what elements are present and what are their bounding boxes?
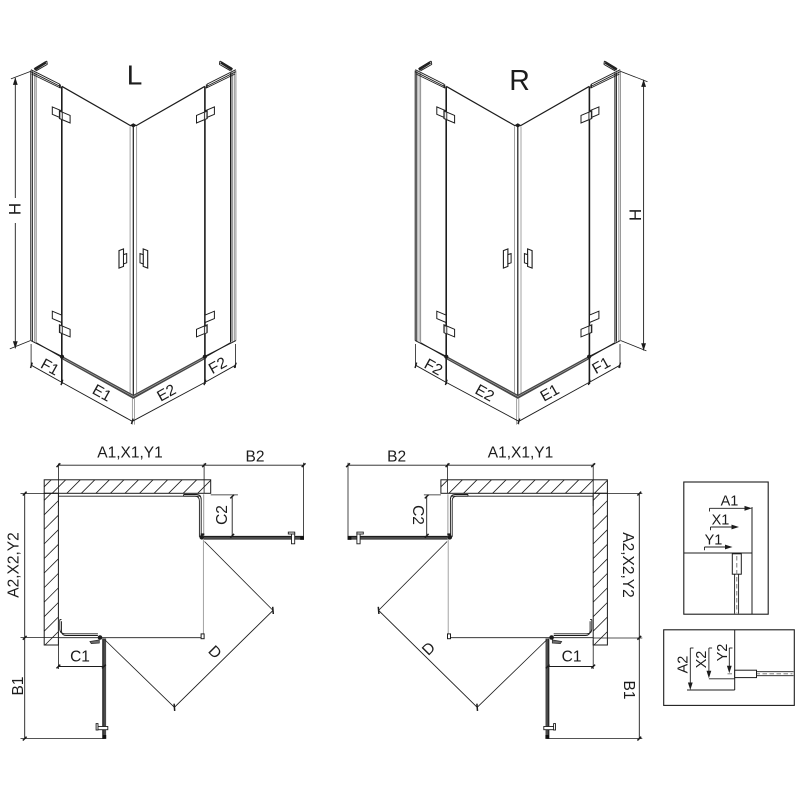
svg-text:B2: B2 [387,449,406,466]
svg-text:A1,X1,Y1: A1,X1,Y1 [97,445,163,462]
svg-text:Y2: Y2 [715,644,731,662]
svg-text:H: H [626,209,645,221]
svg-text:B1: B1 [620,681,637,700]
svg-text:A2: A2 [675,656,691,674]
svg-text:C2: C2 [214,505,231,525]
svg-text:A2,X2,Y2: A2,X2,Y2 [619,532,636,598]
svg-text:Y1: Y1 [705,532,723,548]
svg-text:B1: B1 [10,677,27,696]
svg-text:A1,X1,Y1: A1,X1,Y1 [488,445,554,462]
svg-text:L: L [127,60,143,91]
svg-text:C2: C2 [409,505,426,525]
svg-text:A2,X2,Y2: A2,X2,Y2 [5,532,22,598]
svg-text:X2: X2 [694,651,710,669]
svg-text:R: R [509,65,530,97]
svg-text:C1: C1 [70,649,90,666]
svg-text:B2: B2 [246,449,265,466]
svg-text:H: H [6,203,25,215]
svg-text:C1: C1 [562,649,582,666]
svg-text:A1: A1 [721,494,739,510]
svg-text:X1: X1 [712,512,730,528]
